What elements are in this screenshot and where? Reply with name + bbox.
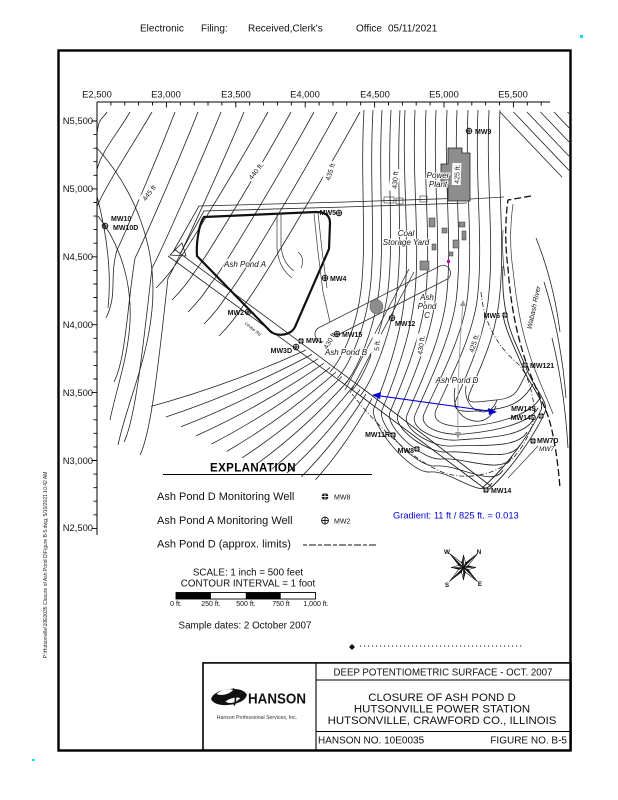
svg-text:E: E [478,581,482,588]
svg-text:N: N [477,549,482,556]
svg-text:Received,Clerk's: Received,Clerk's [248,24,323,35]
svg-text:Ash Pond D (approx. limits): Ash Pond D (approx. limits) [157,539,291,551]
svg-text:MW121: MW121 [530,363,554,370]
svg-text:430 ft.: 430 ft. [417,335,427,355]
svg-text:Ash Pond D Monitoring Well: Ash Pond D Monitoring Well [157,491,294,503]
svg-text:HUTSONVILLE, CRAWFORD CO., ILL: HUTSONVILLE, CRAWFORD CO., ILLINOIS [328,715,557,727]
svg-text:05/11/2021: 05/11/2021 [388,24,438,35]
svg-text:E5,500: E5,500 [498,89,528,100]
svg-text:1,000 ft.: 1,000 ft. [303,601,328,608]
svg-text:N5,000: N5,000 [63,183,93,194]
svg-text:Power: Power [427,171,450,180]
svg-text:Office: Office [356,24,382,35]
svg-text:Filing:: Filing: [201,24,228,35]
svg-text:Plant: Plant [429,180,448,189]
svg-text:Pond: Pond [418,302,437,311]
svg-text:MW8: MW8 [398,448,414,455]
svg-text:CONTOUR INTERVAL = 1 foot: CONTOUR INTERVAL = 1 foot [181,579,316,590]
svg-text:Electronic: Electronic [140,24,184,35]
svg-text:Ash Pond A: Ash Pond A [223,260,266,269]
svg-text:MW15: MW15 [342,332,362,339]
svg-text:E4,500: E4,500 [360,89,390,100]
svg-text:Coal: Coal [398,229,415,238]
svg-text:FIGURE NO. B-5: FIGURE NO. B-5 [490,735,567,746]
svg-text:HUTSONVILLE POWER STATION: HUTSONVILLE POWER STATION [354,703,530,715]
svg-text:E2,500: E2,500 [82,89,112,100]
svg-text:Sample dates: 2 October 2007: Sample dates: 2 October 2007 [179,621,312,632]
svg-text:MW14: MW14 [491,488,511,495]
svg-text:MW3D: MW3D [271,348,292,355]
svg-text:5 ft.: 5 ft. [374,339,382,351]
svg-text:HANSON NO. 10E0035: HANSON NO. 10E0035 [318,735,425,746]
svg-text:Wabash River: Wabash River [527,285,543,330]
svg-text:DEEP POTENTIOMETRIC SURFACE -: DEEP POTENTIOMETRIC SURFACE - OCT. 2007 [334,667,553,678]
svg-text:MW5: MW5 [320,210,336,217]
svg-text:N4,000: N4,000 [63,319,93,330]
svg-text:250 ft.: 250 ft. [201,601,221,608]
svg-text:425 ft.: 425 ft. [469,333,482,354]
svg-text:MW10D: MW10D [113,225,138,232]
svg-text:MW4: MW4 [330,276,346,283]
svg-text:E5,000: E5,000 [429,89,459,100]
svg-text:E3,500: E3,500 [221,89,251,100]
svg-text:Levee Rd: Levee Rd [244,321,262,338]
svg-text:0 ft.: 0 ft. [170,601,182,608]
svg-text:MW7D: MW7D [537,438,558,445]
svg-text:N3,500: N3,500 [63,387,93,398]
svg-text:MW9: MW9 [475,129,491,136]
svg-text:Ash Pond A Monitoring Well: Ash Pond A Monitoring Well [157,515,293,527]
svg-text:MW12: MW12 [395,321,415,328]
svg-text:500 ft.: 500 ft. [236,601,256,608]
svg-text:MW1: MW1 [306,338,322,345]
svg-text:MW7: MW7 [539,446,555,453]
svg-text:Gradient: 11 ft / 825 ft. = 0.: Gradient: 11 ft / 825 ft. = 0.013 [393,511,519,521]
svg-text:S: S [445,582,449,589]
svg-text:MW11R: MW11R [365,432,390,439]
svg-text:E3,000: E3,000 [151,89,181,100]
svg-text:P:\Hutsonville\10E0035 Closure: P:\Hutsonville\10E0035 Closure of Ash Po… [43,472,49,659]
svg-text:Ash Pond B: Ash Pond B [324,348,368,357]
svg-text:N2,500: N2,500 [63,522,93,533]
svg-text:CLOSURE OF ASH POND D: CLOSURE OF ASH POND D [368,692,515,704]
svg-text:MW14S: MW14S [511,406,536,413]
svg-text:N5,500: N5,500 [63,115,93,126]
svg-text:N3,000: N3,000 [63,455,93,466]
svg-text:MW10: MW10 [111,216,131,223]
svg-text:C: C [424,311,430,320]
svg-text:435 ft: 435 ft [325,163,337,182]
svg-text:MW14D: MW14D [511,415,536,422]
svg-text:MW2: MW2 [228,310,244,317]
svg-text:N4,500: N4,500 [63,251,93,262]
svg-text:MW6: MW6 [484,313,500,320]
svg-text:Hanson Professional Services,: Hanson Professional Services, Inc. [217,715,297,721]
svg-text:750 ft: 750 ft [272,601,290,608]
svg-text:MW8: MW8 [334,495,350,502]
svg-text:425 ft.: 425 ft. [454,164,462,184]
svg-text:Ash: Ash [419,293,434,302]
svg-text:W: W [444,549,450,556]
svg-text:HANSON: HANSON [248,691,306,708]
svg-text:E4,000: E4,000 [290,89,320,100]
svg-text:Ash Pond D: Ash Pond D [435,376,479,385]
svg-text:Storage Yard: Storage Yard [383,238,430,247]
svg-text:MW2: MW2 [334,519,350,526]
svg-text:SCALE: 1 inch = 500 feet: SCALE: 1 inch = 500 feet [193,568,304,579]
svg-text:EXPLANATION: EXPLANATION [210,463,296,475]
